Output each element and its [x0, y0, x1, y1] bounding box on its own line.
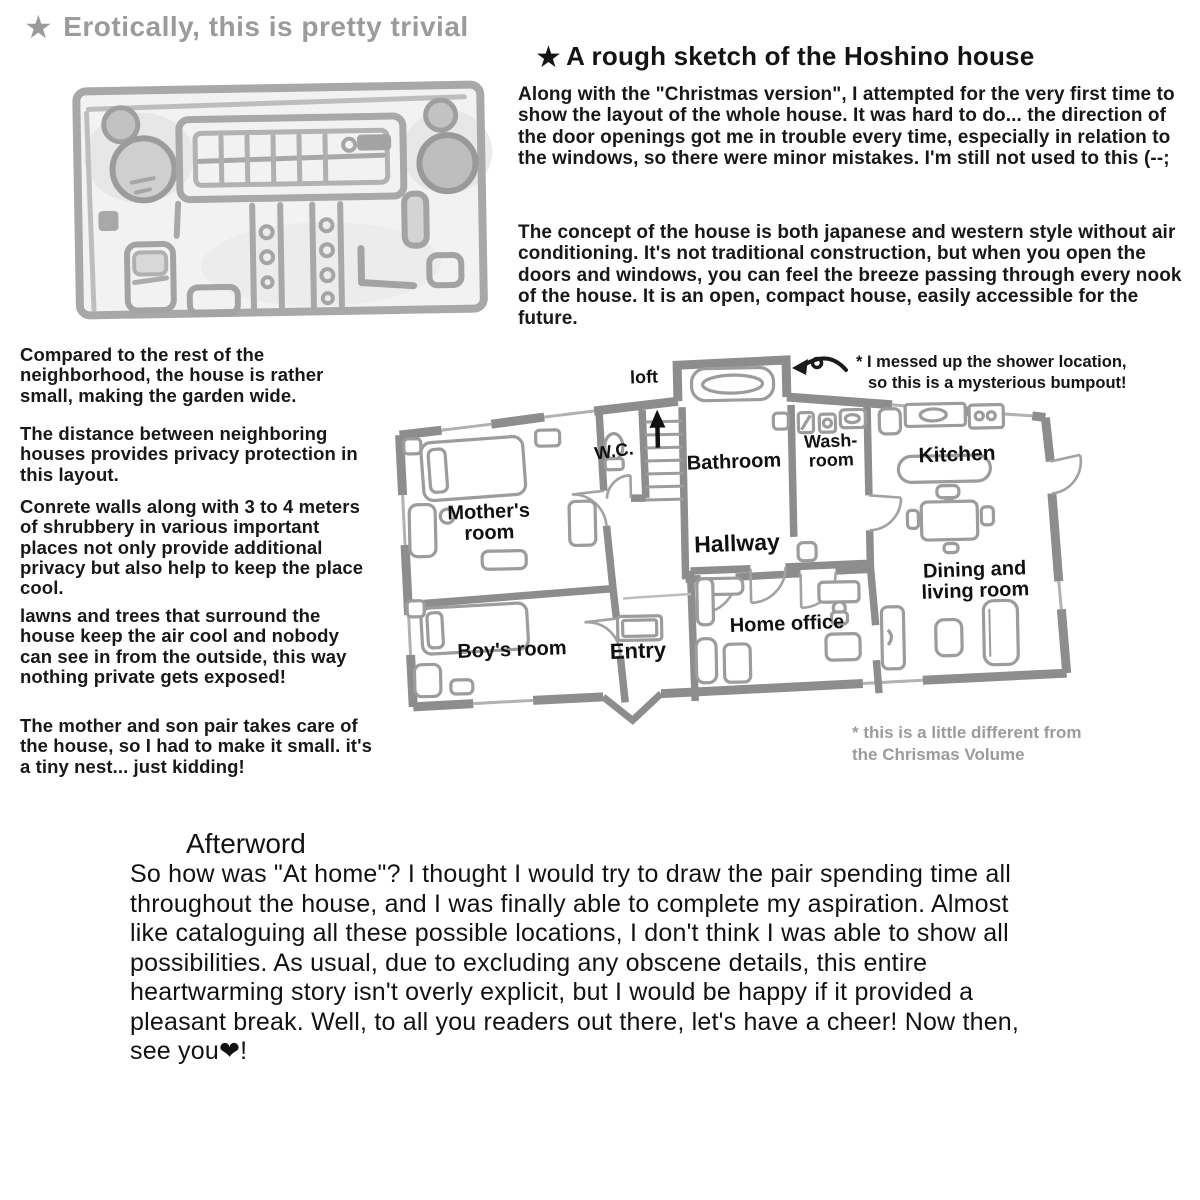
left-paragraph-4: lawns and trees that surround the house … [20, 606, 372, 687]
room-label-dining-living: Dining and living room [897, 557, 1052, 604]
entry-door-icon [603, 694, 662, 721]
room-label-kitchen: Kitchen [902, 442, 1013, 468]
star-icon: ★ [24, 9, 53, 45]
room-label-entry: Entry [594, 638, 683, 664]
floor-plan: loft W.C. Bathroom Wash- room Kitchen Mo… [390, 348, 1090, 748]
room-label-washroom: Wash- room [787, 431, 874, 471]
afterword-body: So how was "At home"? I thought I would … [130, 860, 1050, 1067]
left-paragraph-5: The mother and son pair takes care of th… [20, 716, 372, 777]
intro-paragraph-2: The concept of the house is both japanes… [518, 222, 1190, 329]
left-paragraph-2: The distance between neighboring houses … [20, 424, 372, 485]
room-label-hallway: Hallway [676, 530, 799, 558]
room-label-mothers-room: Mother's room [429, 500, 548, 546]
page-title-text: A rough sketch of the Hoshino house [566, 41, 1034, 71]
afterword-heading: Afterword [186, 828, 306, 860]
room-label-mothers-line2: room [430, 521, 549, 546]
room-label-bathroom: Bathroom [678, 450, 791, 475]
stairs-up-arrow-icon [649, 410, 666, 448]
page-title: ★A rough sketch of the Hoshino house [535, 40, 1034, 75]
plan-footnote: * this is a little different from the Ch… [852, 722, 1082, 766]
garden-sketch-drawing [60, 60, 505, 332]
garden-sketch [60, 60, 505, 332]
room-label-washroom-line2: room [788, 449, 875, 471]
intro-paragraph-1: Along with the "Christmas version", I at… [518, 84, 1186, 170]
plan-footnote-line1: * this is a little different from [852, 722, 1082, 744]
plan-footnote-line2: the Chrismas Volume [852, 744, 1082, 766]
left-paragraph-3: Conrete walls along with 3 to 4 meters o… [20, 497, 372, 599]
sketch-caption-text: Erotically, this is pretty trivial [63, 11, 469, 42]
scanned-afterword-page: { "colors": { "ink": "#161616", "gray_te… [0, 0, 1200, 1200]
room-label-loft: loft [614, 367, 675, 388]
left-paragraph-1: Compared to the rest of the neighborhood… [20, 345, 372, 406]
sketch-caption: ★Erotically, this is pretty trivial [24, 8, 469, 46]
star-icon: ★ [535, 41, 562, 74]
